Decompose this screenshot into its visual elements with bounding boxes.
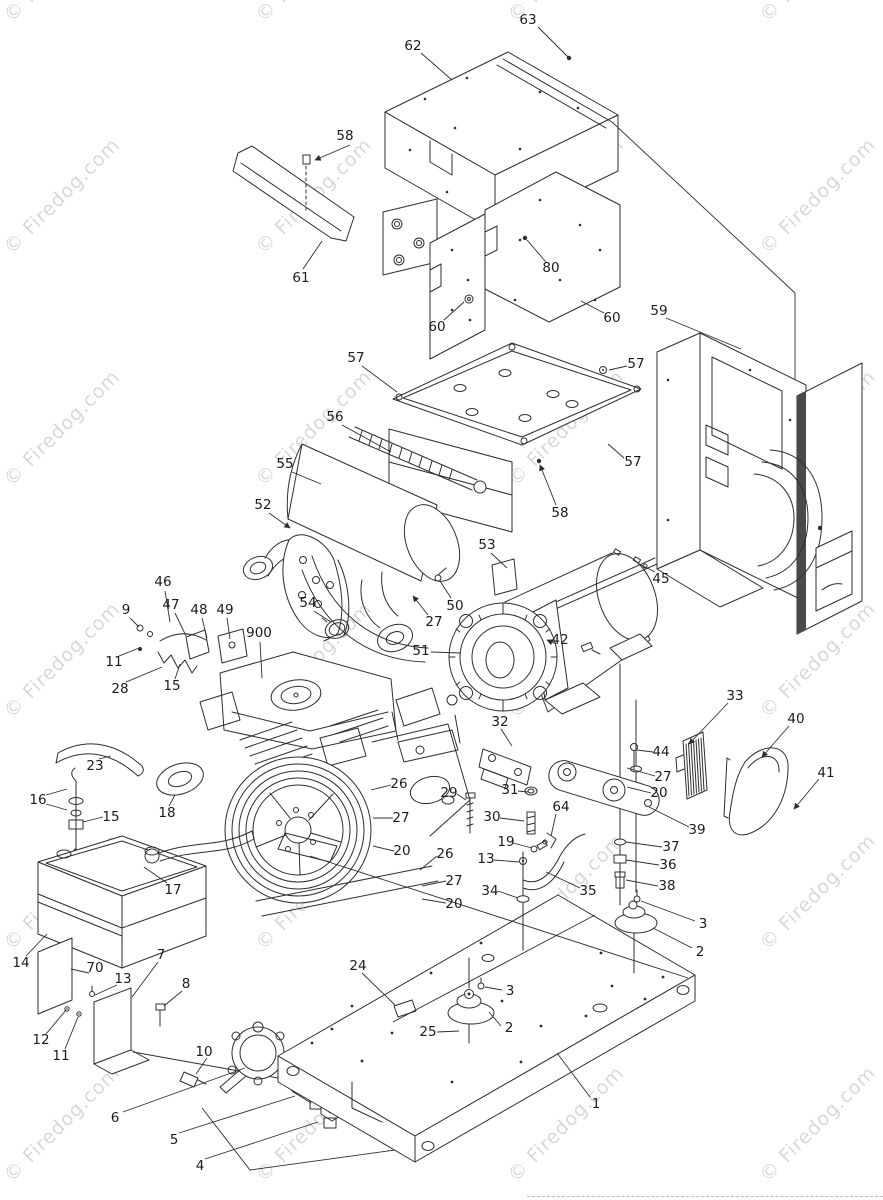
part-grille-cover (676, 732, 788, 835)
part-hose-grommet (56, 744, 207, 801)
parts-diagram-page: © Firedog.com© Firedog.com© Firedog.com©… (0, 0, 883, 1200)
part-bracket-cluster (137, 625, 247, 673)
exploded-parts-diagram (0, 0, 883, 1200)
part-corner-bracket (233, 146, 354, 241)
part-control-enclosure (657, 333, 862, 634)
part-alternator (449, 545, 669, 714)
page-divider (527, 1196, 883, 1197)
